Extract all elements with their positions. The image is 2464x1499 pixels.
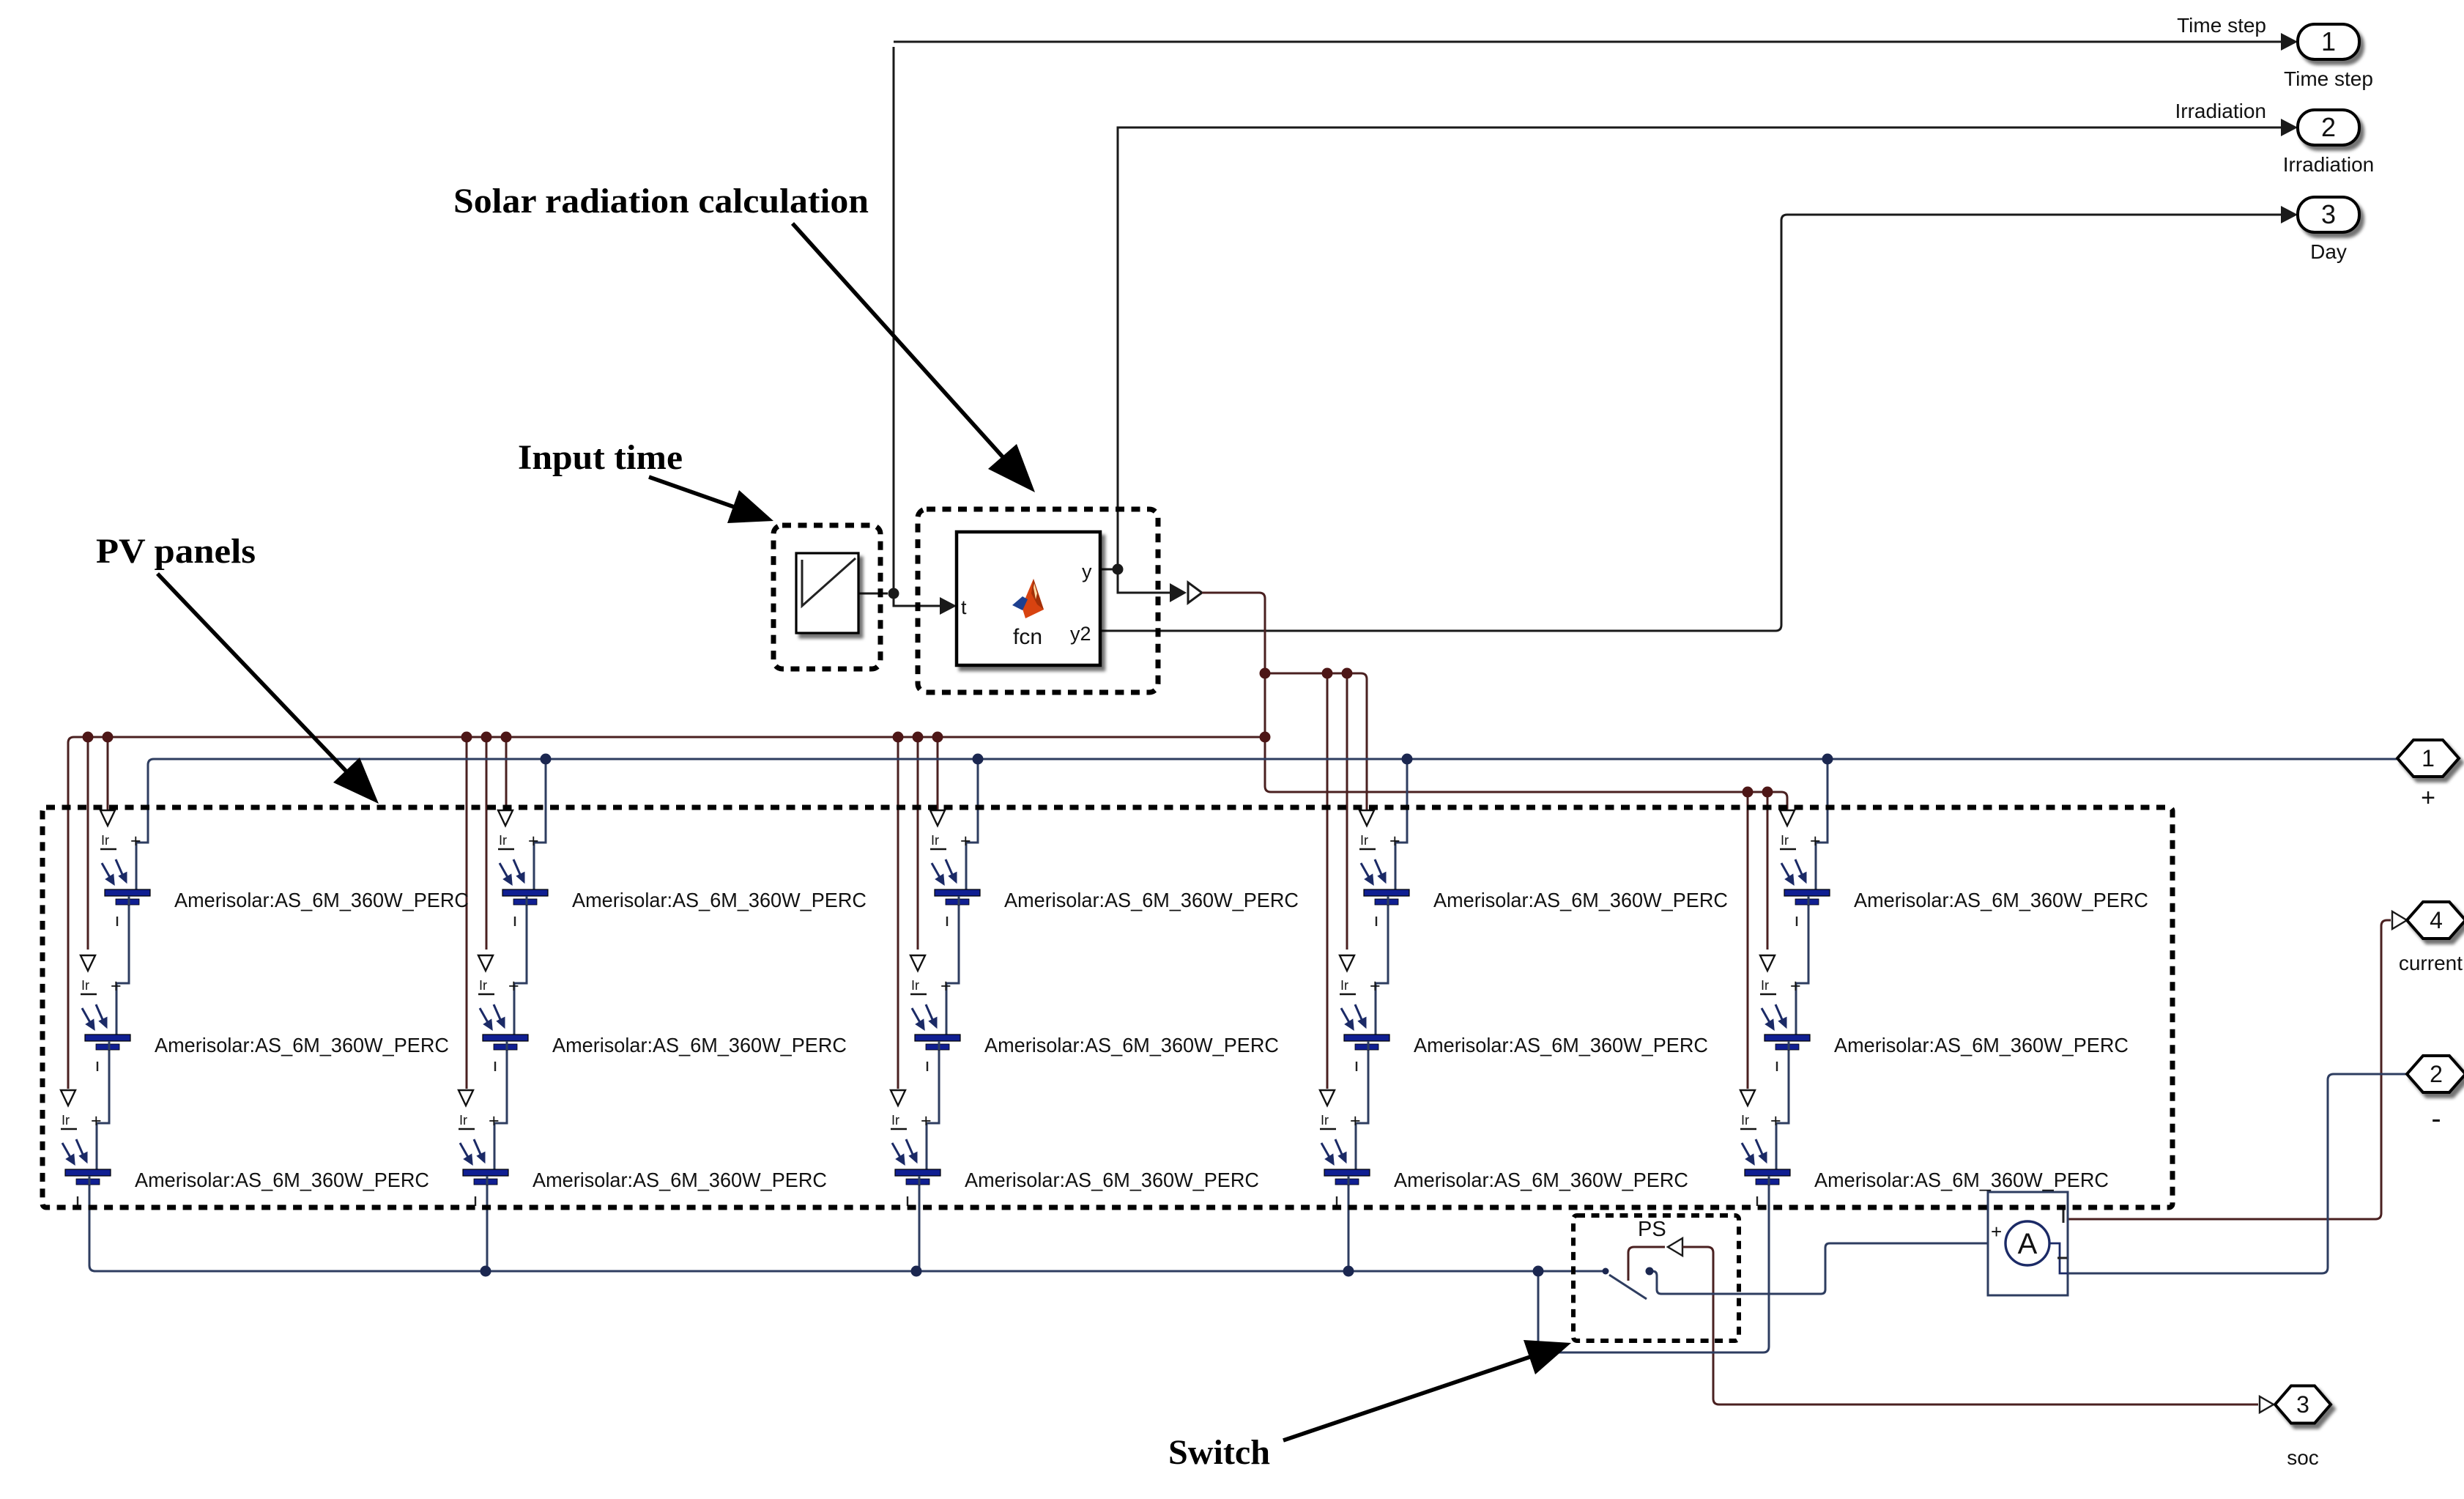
svg-text:+: + [1389,831,1400,851]
svg-text:Switch: Switch [1168,1433,1270,1472]
svg-text:Ir: Ir [81,978,89,993]
svg-text:Irradiation: Irradiation [2175,100,2266,122]
svg-text:soc: soc [2287,1446,2319,1469]
svg-text:Ir: Ir [459,1113,467,1128]
svg-text:+: + [111,976,122,996]
svg-text:Amerisolar:AS_6M_360W_PERC: Amerisolar:AS_6M_360W_PERC [135,1169,429,1191]
svg-text:+: + [489,1111,500,1131]
svg-text:2: 2 [2430,1061,2443,1087]
svg-text:Amerisolar:AS_6M_360W_PERC: Amerisolar:AS_6M_360W_PERC [965,1169,1259,1191]
svg-text:y2: y2 [1070,623,1091,645]
svg-text:+: + [528,831,539,851]
svg-text:3: 3 [2296,1391,2309,1418]
svg-text:current: current [2399,952,2463,974]
svg-text:Ir: Ir [1360,833,1368,848]
svg-text:Amerisolar:AS_6M_360W_PERC: Amerisolar:AS_6M_360W_PERC [174,889,469,911]
svg-text:+: + [508,976,519,996]
svg-text:Amerisolar:AS_6M_360W_PERC: Amerisolar:AS_6M_360W_PERC [552,1034,847,1056]
svg-text:Ir: Ir [1741,1113,1749,1128]
svg-text:+: + [1991,1221,2002,1243]
svg-text:fcn: fcn [1013,625,1042,649]
svg-text:2: 2 [2321,112,2336,142]
svg-text:+: + [1770,1111,1781,1131]
svg-text:+: + [960,831,971,851]
svg-text:+: + [940,976,951,996]
svg-text:PV panels: PV panels [96,532,256,571]
svg-text:Ir: Ir [1781,833,1789,848]
svg-text:Amerisolar:AS_6M_360W_PERC: Amerisolar:AS_6M_360W_PERC [155,1034,449,1056]
svg-text:3: 3 [2321,199,2336,229]
svg-text:Amerisolar:AS_6M_360W_PERC: Amerisolar:AS_6M_360W_PERC [1854,889,2148,911]
svg-text:1: 1 [2321,26,2336,56]
svg-text:+: + [2421,784,2435,812]
svg-text:Amerisolar:AS_6M_360W_PERC: Amerisolar:AS_6M_360W_PERC [984,1034,1279,1056]
svg-text:+: + [1370,976,1381,996]
svg-text:Day: Day [2310,240,2347,263]
svg-text:Ir: Ir [101,833,109,848]
svg-text:Amerisolar:AS_6M_360W_PERC: Amerisolar:AS_6M_360W_PERC [1004,889,1299,911]
svg-text:+: + [1790,976,1801,996]
svg-text:4: 4 [2430,907,2443,933]
svg-text:Input time: Input time [518,438,683,477]
svg-text:Ir: Ir [62,1113,70,1128]
svg-text:Time step: Time step [2177,14,2266,37]
svg-text:Time step: Time step [2284,67,2373,90]
svg-text:PS: PS [1638,1218,1666,1241]
svg-text:1: 1 [2422,745,2435,771]
svg-text:y: y [1082,560,1092,582]
svg-text:Amerisolar:AS_6M_360W_PERC: Amerisolar:AS_6M_360W_PERC [532,1169,827,1191]
svg-text:Ir: Ir [911,978,919,993]
svg-text:Ir: Ir [1321,1113,1329,1128]
svg-text:Ir: Ir [891,1113,899,1128]
svg-text:+: + [1350,1111,1361,1131]
svg-text:+: + [91,1111,102,1131]
svg-text:Irradiation: Irradiation [2283,153,2375,176]
svg-text:Amerisolar:AS_6M_360W_PERC: Amerisolar:AS_6M_360W_PERC [1433,889,1728,911]
svg-text:+: + [130,831,141,851]
svg-text:Ir: Ir [499,833,507,848]
svg-text:Amerisolar:AS_6M_360W_PERC: Amerisolar:AS_6M_360W_PERC [572,889,867,911]
svg-text:Amerisolar:AS_6M_360W_PERC: Amerisolar:AS_6M_360W_PERC [1814,1169,2109,1191]
svg-text:Amerisolar:AS_6M_360W_PERC: Amerisolar:AS_6M_360W_PERC [1394,1169,1688,1191]
svg-text:A: A [2018,1228,2038,1260]
svg-text:-: - [2431,1103,2441,1135]
svg-text:Amerisolar:AS_6M_360W_PERC: Amerisolar:AS_6M_360W_PERC [1414,1034,1708,1056]
svg-text:Solar radiation calculation: Solar radiation calculation [453,182,869,221]
svg-text:t: t [961,596,967,618]
svg-text:Ir: Ir [479,978,487,993]
svg-text:+: + [1810,831,1821,851]
svg-text:Ir: Ir [931,833,939,848]
svg-text:+: + [921,1111,932,1131]
svg-text:Ir: Ir [1340,978,1348,993]
svg-text:Ir: Ir [1761,978,1769,993]
svg-text:Amerisolar:AS_6M_360W_PERC: Amerisolar:AS_6M_360W_PERC [1834,1034,2129,1056]
